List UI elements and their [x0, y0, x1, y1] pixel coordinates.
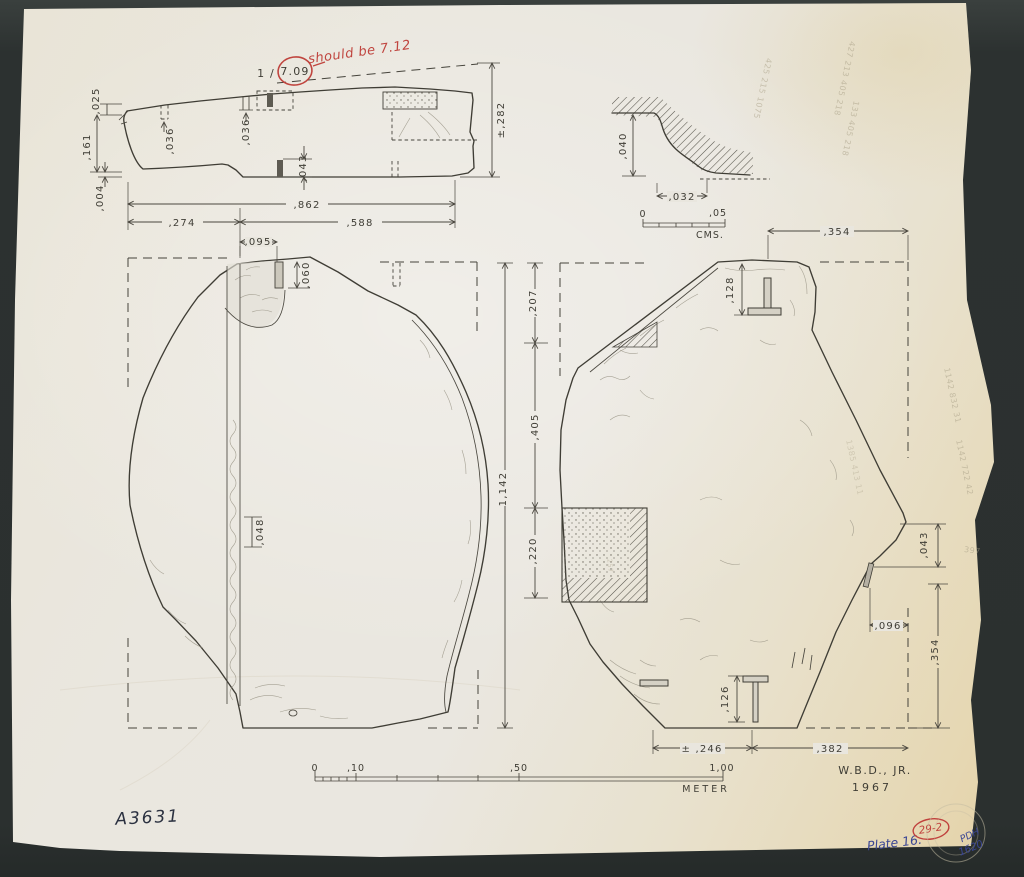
meter-scale-bar: 0 ,10 ,50 1,00 METER [311, 763, 734, 795]
dim-043-right: ,043 [919, 531, 930, 558]
dim-220: ,220 [528, 537, 539, 564]
pencil-note: 397 [963, 545, 981, 556]
clamp-cutting [275, 262, 283, 288]
lead-channel [383, 92, 437, 109]
pencil-note: 257 [605, 559, 614, 574]
right-block-plan-view: ,128 ,126 ,354 ,043 ,096 [560, 226, 950, 755]
dim-048: ,048 [255, 518, 266, 545]
pour-channel [562, 508, 647, 602]
ratio-value: 7.09 [280, 65, 309, 78]
dim-274: ,274 [168, 218, 195, 229]
pencil-note: 1385 413 11 [844, 439, 865, 496]
scanned-plate-photo: ,025 ,161 ,004 ,036 ,036 ,043 ,862 ,274 … [0, 0, 1024, 877]
t-clamp-cutting-top [748, 278, 781, 315]
section-profile-view: ,025 ,161 ,004 ,036 ,036 ,043 ,862 ,274 … [82, 63, 507, 256]
dim-095: ,095 [244, 237, 271, 248]
archive-marks: A3631 Plate 16. 29-2 PDH 1620 [114, 804, 985, 862]
cms-scale-0: 0 [639, 209, 646, 220]
dim-1142: 1,142 [498, 472, 509, 507]
dim-040: ,040 [618, 132, 629, 159]
cms-scale-05: ,05 [709, 208, 727, 219]
dim-207: ,207 [528, 289, 539, 316]
draftsman-signature: W.B.D., JR. 1967 [838, 764, 912, 794]
dim-588: ,588 [346, 218, 373, 229]
meter-scale-unit: METER [682, 784, 730, 795]
red-correction-text: should be 7.12 [307, 38, 412, 67]
dim-382: ,382 [816, 744, 843, 755]
dim-282: ±,282 [496, 102, 507, 139]
dim-246: ± ,246 [681, 744, 722, 755]
pencil-note: 425 215 1075 [752, 57, 774, 120]
ratio-prefix: 1 / [257, 67, 275, 80]
dim-025: ,025 [91, 87, 102, 114]
left-block-plan-view: ,095 ,060 ,048 [128, 237, 489, 728]
dowel-hole [267, 93, 273, 107]
clamp-cutting [277, 160, 283, 177]
dim-096: ,096 [874, 621, 901, 632]
meter-scale-50: ,50 [510, 763, 528, 774]
moulding-detail-view: ,040 ,032 0 ,05 CMS. [612, 97, 770, 241]
center-dimension-chain: 1,142 ,207 ,405 ,220 [497, 263, 548, 728]
dim-032: ,032 [668, 192, 695, 203]
meter-scale-10: ,10 [347, 763, 365, 774]
clamp-bar-cutting [640, 680, 668, 686]
dim-862: ,862 [293, 200, 320, 211]
dim-004: ,004 [95, 184, 106, 211]
red-correction-note: 1 / 7.09 should be 7.12 [257, 38, 412, 87]
dim-161: ,161 [82, 133, 93, 160]
paper-crease [60, 676, 520, 690]
dim-043-section: ,043 [298, 154, 309, 181]
meter-scale-100: 1,00 [709, 763, 734, 774]
signature-year: 1967 [852, 781, 892, 794]
dim-036-a: ,036 [165, 127, 176, 154]
meter-scale-0: 0 [311, 763, 318, 774]
dim-126: ,126 [720, 685, 731, 712]
dim-128: ,128 [725, 276, 736, 303]
catalog-number: A3631 [114, 806, 181, 829]
dim-036-b: ,036 [241, 118, 252, 145]
cms-scale-bar: 0 ,05 CMS. [639, 208, 727, 241]
measured-drawing: ,025 ,161 ,004 ,036 ,036 ,043 ,862 ,274 … [0, 0, 1024, 877]
dim-060: ,060 [301, 261, 312, 288]
paper-crease [120, 720, 210, 790]
t-clamp-cutting-bottom [743, 676, 768, 722]
pencil-note: 1142 832 31 [942, 367, 963, 424]
hatched-break [613, 322, 657, 347]
pencil-note: 1142 722 42 [954, 439, 975, 496]
red-index-number: 29-2 [918, 821, 944, 837]
signature-author: W.B.D., JR. [838, 764, 912, 777]
dim-405: ,405 [530, 413, 541, 440]
dim-354-top: ,354 [823, 227, 850, 238]
cms-scale-unit: CMS. [696, 230, 724, 241]
dim-354-right: ,354 [930, 638, 941, 665]
